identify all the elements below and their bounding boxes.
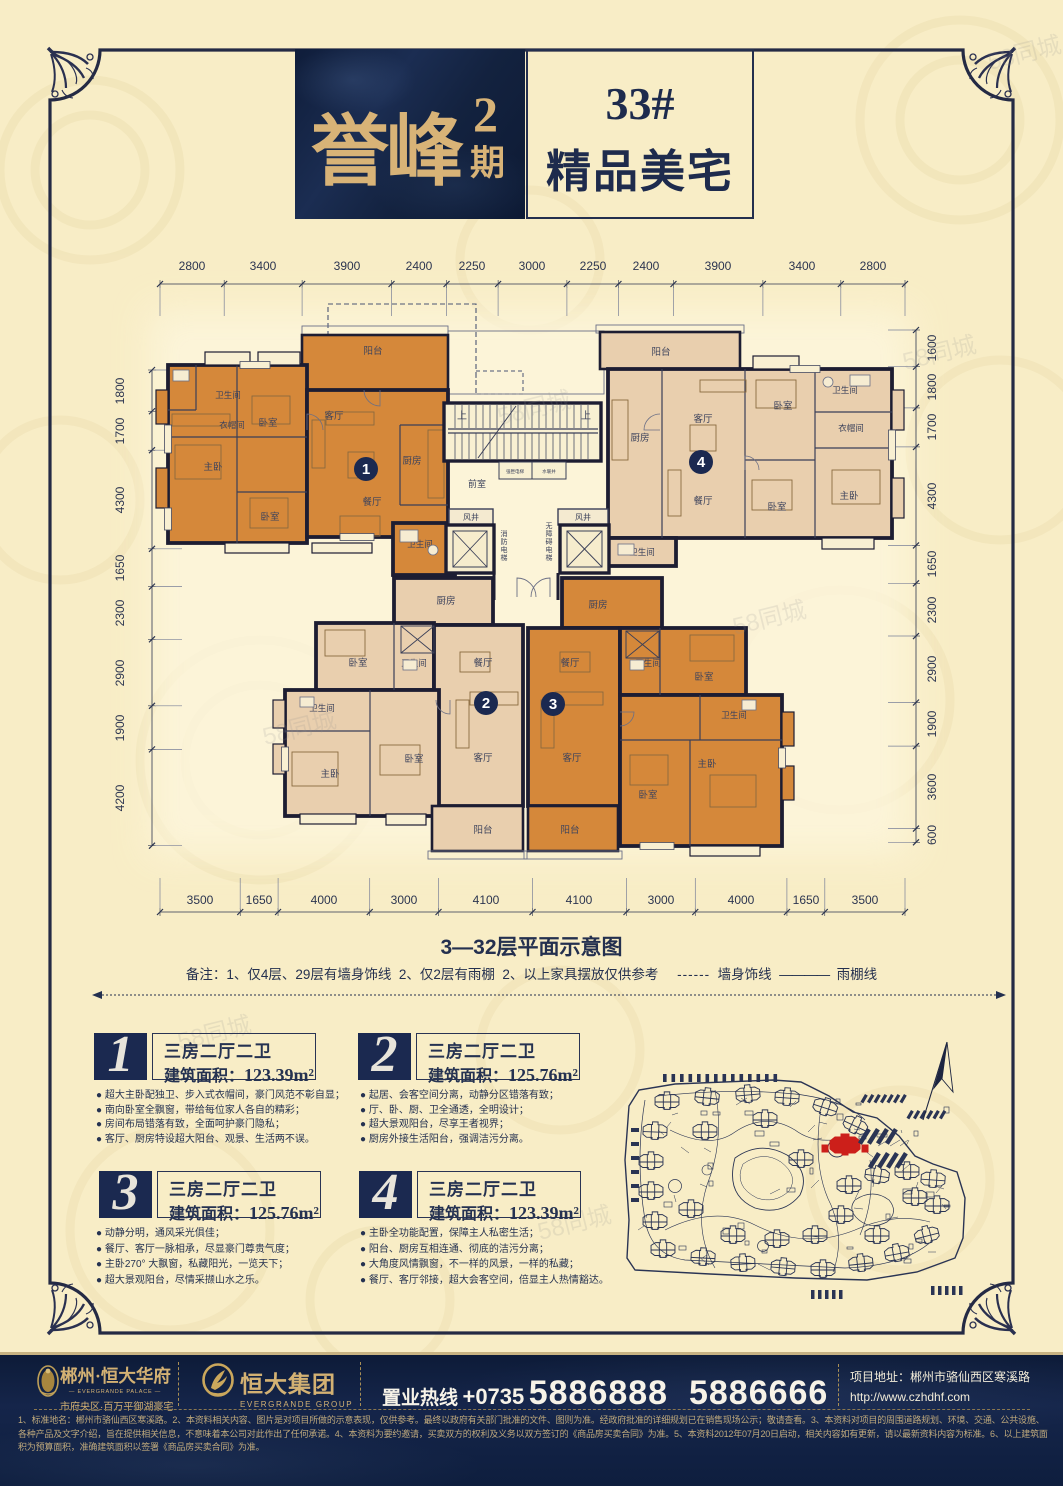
svg-text:2800: 2800	[179, 259, 206, 273]
svg-text:衣帽间: 衣帽间	[219, 420, 245, 430]
svg-text:卧室: 卧室	[258, 417, 277, 429]
svg-text:1650: 1650	[113, 554, 127, 581]
svg-text:58同城: 58同城	[900, 332, 979, 376]
svg-text:卧室: 卧室	[773, 400, 792, 412]
svg-text:主卧: 主卧	[839, 490, 859, 502]
svg-text:2900: 2900	[113, 659, 127, 686]
svg-text:卫生间: 卫生间	[721, 710, 747, 720]
svg-text:厨房: 厨房	[402, 455, 421, 467]
svg-text:2400: 2400	[633, 259, 660, 273]
svg-text:4100: 4100	[473, 893, 500, 907]
svg-text:4200: 4200	[113, 784, 127, 811]
svg-text:2: 2	[482, 695, 490, 712]
svg-text:4: 4	[697, 454, 706, 471]
svg-text:卧室: 卧室	[260, 511, 279, 523]
svg-text:3000: 3000	[519, 259, 546, 273]
svg-text:卧室: 卧室	[348, 657, 367, 669]
svg-text:2800: 2800	[860, 259, 887, 273]
svg-text:58同城: 58同城	[985, 32, 1063, 76]
svg-text:衣帽间: 衣帽间	[838, 423, 864, 433]
svg-text:厨房: 厨房	[588, 599, 607, 611]
svg-text:1900: 1900	[925, 710, 939, 737]
svg-text:3900: 3900	[705, 259, 732, 273]
svg-text:1650: 1650	[793, 893, 820, 907]
svg-text:2250: 2250	[459, 259, 486, 273]
svg-text:3500: 3500	[187, 893, 214, 907]
svg-text:1800: 1800	[925, 373, 939, 400]
svg-text:2900: 2900	[925, 655, 939, 682]
svg-text:3000: 3000	[391, 893, 418, 907]
svg-text:4100: 4100	[566, 893, 593, 907]
svg-text:消防电梯: 消防电梯	[501, 529, 508, 562]
svg-text:阳台: 阳台	[473, 824, 492, 836]
svg-text:阳台: 阳台	[560, 824, 579, 836]
svg-text:2250: 2250	[580, 259, 607, 273]
svg-text:风井: 风井	[575, 512, 591, 522]
svg-text:卫生间: 卫生间	[215, 390, 241, 400]
svg-text:主卧: 主卧	[203, 461, 223, 473]
svg-text:上: 上	[457, 410, 467, 422]
svg-text:阳台: 阳台	[363, 345, 382, 357]
svg-text:1900: 1900	[113, 714, 127, 741]
svg-text:卫生间: 卫生间	[832, 385, 858, 395]
svg-text:阳台: 阳台	[651, 346, 670, 358]
svg-text:2300: 2300	[113, 599, 127, 626]
svg-text:1: 1	[362, 461, 370, 478]
svg-text:客厅: 客厅	[324, 410, 344, 422]
svg-text:强匣电梯: 强匣电梯	[506, 468, 524, 475]
svg-text:上: 上	[581, 410, 591, 422]
svg-text:2300: 2300	[925, 596, 939, 623]
svg-text:600: 600	[925, 825, 939, 845]
svg-text:N: N	[931, 1040, 942, 1042]
svg-text:卧室: 卧室	[404, 753, 423, 765]
svg-text:4000: 4000	[311, 893, 338, 907]
svg-text:厨房: 厨房	[436, 595, 455, 607]
svg-text:1650: 1650	[246, 893, 273, 907]
svg-text:4300: 4300	[113, 486, 127, 513]
svg-text:3: 3	[549, 696, 557, 713]
svg-text:客厅: 客厅	[693, 413, 713, 425]
svg-text:3900: 3900	[334, 259, 361, 273]
svg-text:卧室: 卧室	[767, 501, 786, 513]
svg-text:厨房: 厨房	[630, 432, 649, 444]
svg-text:客厅: 客厅	[562, 752, 582, 764]
svg-text:餐厅: 餐厅	[560, 657, 580, 669]
svg-text:主卧: 主卧	[697, 758, 717, 770]
svg-text:餐厅: 餐厅	[473, 657, 493, 669]
svg-text:卧室: 卧室	[694, 671, 713, 683]
svg-text:客厅: 客厅	[473, 752, 493, 764]
svg-text:卧室: 卧室	[638, 789, 657, 801]
svg-text:1650: 1650	[925, 550, 939, 577]
svg-text:水暖井: 水暖井	[542, 468, 556, 475]
svg-text:4000: 4000	[728, 893, 755, 907]
svg-text:3500: 3500	[852, 893, 879, 907]
svg-text:4300: 4300	[925, 482, 939, 509]
svg-text:3000: 3000	[648, 893, 675, 907]
svg-text:1700: 1700	[925, 413, 939, 440]
svg-text:无障碍电梯: 无障碍电梯	[546, 522, 553, 562]
svg-text:风井: 风井	[463, 512, 479, 522]
svg-text:1800: 1800	[113, 377, 127, 404]
svg-text:餐厅: 餐厅	[693, 495, 713, 507]
svg-text:1700: 1700	[113, 417, 127, 444]
svg-text:餐厅: 餐厅	[362, 496, 382, 508]
svg-text:2400: 2400	[406, 259, 433, 273]
svg-text:3400: 3400	[250, 259, 277, 273]
svg-text:前室: 前室	[468, 478, 486, 489]
svg-text:主卧: 主卧	[320, 768, 340, 780]
svg-text:3400: 3400	[789, 259, 816, 273]
svg-text:3600: 3600	[925, 773, 939, 800]
